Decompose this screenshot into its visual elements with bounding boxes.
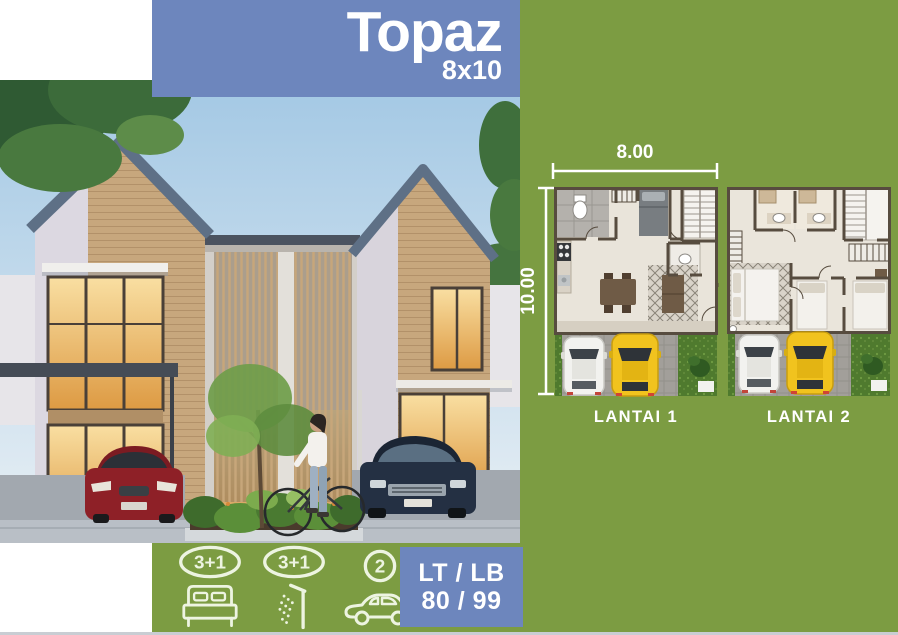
carport-count-badge: 2 xyxy=(363,549,397,583)
service-area xyxy=(557,190,609,237)
maid-bed xyxy=(639,190,668,236)
stairs xyxy=(844,189,889,240)
left-fence xyxy=(0,275,38,425)
area-box: LT / LB 80 / 99 xyxy=(400,547,523,627)
wardrobe-right xyxy=(849,244,889,261)
title-band: Topaz 8x10 xyxy=(152,0,520,97)
tall-window xyxy=(48,277,163,410)
upper-window xyxy=(432,288,482,370)
house-photo xyxy=(0,80,520,543)
white-car-top-view xyxy=(561,337,607,395)
bottom-left-white-block xyxy=(0,543,152,632)
bathroom-2 xyxy=(796,189,834,229)
stairs xyxy=(684,190,716,238)
bedrooms-count-badge: 3+1 xyxy=(176,545,244,579)
yellow-car-top-view xyxy=(784,332,836,394)
shower-icon xyxy=(274,582,314,630)
awning xyxy=(42,263,168,272)
living-room xyxy=(648,265,698,321)
top-left-white-block xyxy=(0,0,152,80)
door-mat xyxy=(698,381,714,392)
floor-label-lantai-1: LANTAI 1 xyxy=(550,408,722,427)
house-type-size: 8x10 xyxy=(152,57,502,84)
svg-text:2: 2 xyxy=(375,557,386,578)
bedroom-2-bed xyxy=(797,281,827,329)
svg-text:3+1: 3+1 xyxy=(278,553,310,574)
yellow-car-top-view xyxy=(609,334,661,396)
carport-canopy-left xyxy=(0,363,178,377)
svg-text:3+1: 3+1 xyxy=(194,553,226,574)
area-label: LT / LB xyxy=(418,559,504,587)
depth-dimension-label: 10.00 xyxy=(518,267,539,315)
width-dimension-label: 8.00 xyxy=(617,142,654,163)
spec-bedrooms: 3+1 xyxy=(176,545,244,630)
brochure-topaz: Topaz 8x10 8.00 10.00 xyxy=(0,0,898,635)
bathrooms-count-badge: 3+1 xyxy=(260,545,328,579)
width-dimension: 8.00 xyxy=(548,136,722,182)
bed-icon xyxy=(181,582,239,630)
awning xyxy=(396,380,512,388)
kitchen xyxy=(557,241,571,293)
floor-plan-lantai-2 xyxy=(723,183,895,400)
house-type-name: Topaz xyxy=(152,4,502,61)
spec-bathrooms: 3+1 xyxy=(260,545,328,630)
floor-label-lantai-2: LANTAI 2 xyxy=(723,408,895,427)
area-value: 80 / 99 xyxy=(422,587,502,615)
master-bedroom xyxy=(729,263,791,333)
floor-plan-lantai-1 xyxy=(550,183,722,400)
bathroom-1 xyxy=(756,189,794,229)
door-mat xyxy=(871,380,887,391)
white-car-top-view xyxy=(736,335,782,393)
